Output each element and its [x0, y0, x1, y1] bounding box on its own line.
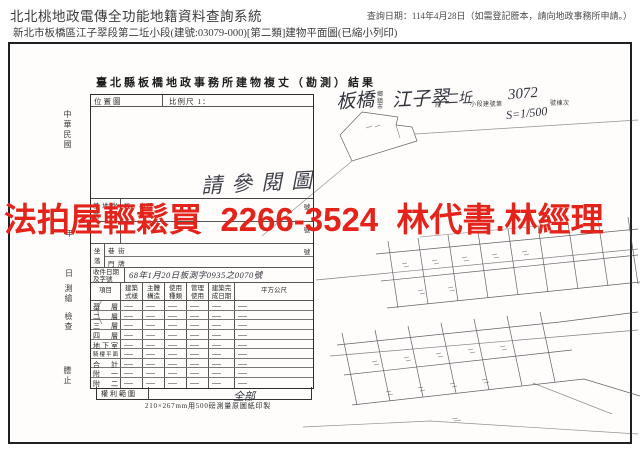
address-lane-street: 巷 街	[105, 244, 301, 256]
receipt-row: 收件日期及字號 68年1月20日板測字0935之0070號	[91, 268, 313, 283]
margin-check-label: 檢查	[63, 312, 74, 344]
margin-day-label: 日	[65, 268, 73, 279]
subsection-handwriting: 二坵	[443, 87, 472, 108]
form-header-row: 位置圖 比例尺 1：	[91, 95, 313, 107]
rights-scope-row: 權利範圍 全部	[96, 387, 312, 400]
table-row: 地下室	[91, 340, 313, 350]
survey-form: 位置圖 比例尺 1： 請參閱圖 基地坐落 段 小段 號 號 坐落 巷 街 號	[90, 94, 314, 389]
scale-label: 比例尺 1：	[163, 95, 313, 106]
location-map-box: 請參閱圖	[91, 107, 313, 199]
table-row: 基層	[91, 301, 313, 311]
township-handwriting: 板橋	[335, 85, 375, 115]
col-style: 建築式樣	[121, 283, 143, 300]
system-title: 北北桃地政電傳全功能地籍資料查詢系統	[10, 5, 262, 25]
foreclosure-ad-overlay: 法拍屋輕鬆買 2266-3524 林代書.林經理	[4, 200, 638, 240]
building-number-label: 號棟次	[550, 98, 570, 107]
table-row: 二層	[91, 311, 313, 321]
col-square-meters: 平方公尺	[235, 283, 313, 300]
document-subtitle: 新北市板橋區江子翠段第二坵小段(建號:03079-000)[第二類]建物平面圖(…	[13, 25, 397, 40]
query-date: 查詢日期：114年4月28日（如需登記謄本，請向地政事務所申請。）	[367, 9, 632, 22]
col-management: 管理使用	[187, 283, 209, 300]
address-label: 坐落	[91, 244, 105, 267]
handwritten-note: 請參閱圖	[200, 164, 321, 200]
scanned-document: 臺北縣板橋地政事務所建物複丈（勘測）結果 中華民國 年 日 測繪 檢查 謄止 位…	[8, 42, 632, 444]
address-no-suffix: 號	[301, 244, 313, 256]
col-completion-date: 建築完成日期	[209, 283, 235, 300]
margin-era-label: 中華民國	[62, 110, 73, 158]
address-row: 坐落 巷 街 號 門 牌	[91, 244, 313, 268]
table-row: 三層	[91, 320, 313, 330]
location-map-label: 位置圖	[91, 95, 163, 106]
township-label: 鄉鎮市	[377, 92, 385, 112]
paper-size-note: 210×267mm用500磅測量原圖紙印製	[102, 401, 314, 411]
section-label: 段	[435, 100, 442, 109]
scale-handwriting: S=1/500	[505, 104, 548, 123]
table-row: 合計	[91, 359, 313, 369]
land-query-printout: { "header": { "system_title": "北北桃地政電傳全功…	[0, 0, 640, 451]
measure-table-body: 基層 二層 三層 四層 地下室 騎樓平面 合計 附一 附二	[91, 301, 313, 388]
margin-stamp-label: 謄止	[62, 366, 73, 398]
col-use-type: 使用種類	[165, 283, 187, 300]
col-item: 項目	[91, 283, 121, 300]
print-header: 北北桃地政電傳全功能地籍資料查詢系統 查詢日期：114年4月28日（如需登記謄本…	[10, 5, 632, 25]
col-structure: 主體構造	[143, 283, 165, 300]
measure-table-header: 項目 建築式樣 主體構造 使用種類 管理使用 建築完成日期 平方公尺	[91, 283, 313, 301]
survey-form-title: 臺北縣板橋地政事務所建物複丈（勘測）結果	[96, 74, 376, 90]
receipt-handwriting: 68年1月20日板測字0935之0070號	[129, 270, 263, 280]
rights-scope-label: 權利範圍	[97, 387, 149, 399]
building-number-handwriting: 3072	[507, 85, 538, 105]
table-row: 四層	[91, 330, 313, 340]
subsection-label: 小段建號第	[470, 99, 503, 108]
table-row: 騎樓平面	[91, 349, 313, 359]
table-row: 附一	[91, 368, 313, 378]
receipt-label: 收件日期及字號	[91, 268, 125, 282]
